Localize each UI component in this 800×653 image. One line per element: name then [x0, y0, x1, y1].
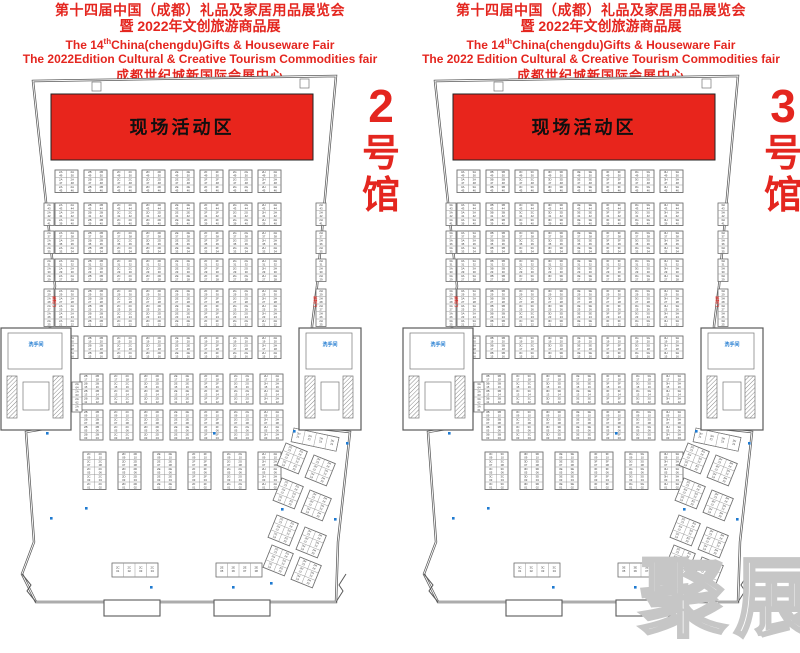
- stairs-icon: [305, 376, 315, 418]
- booth-strip: 2C012C022C032C04: [112, 563, 158, 577]
- booth-cell-label: 3E09: [576, 410, 580, 417]
- booth-block: 2A312A322A292A302A272A28: [55, 259, 78, 282]
- booth-cell-label: 3E03: [576, 433, 580, 440]
- entrance-porch: [104, 600, 160, 616]
- booth-block: 3E293E303E273E283E253E263E233E243E213E22: [573, 289, 596, 327]
- booth-cell-label: 2E11: [174, 397, 178, 404]
- booth-block: 2C372C382C352C362C332C34: [113, 231, 136, 254]
- booth-cell-label: 3H45: [664, 185, 668, 192]
- booth-cell-label: 3A29: [449, 289, 453, 296]
- activity-area-banner: 现场活动区: [51, 94, 313, 160]
- booth-cell-label: 2E24: [187, 312, 191, 319]
- booth-cell-label: 2E23: [175, 312, 179, 319]
- booth-block: 3G293G303G273G283G253G263G233G243G213G22: [631, 289, 654, 327]
- booth-cell-label: 3C06: [500, 467, 504, 474]
- booth-cell-label: 2G24: [244, 312, 248, 319]
- booth-cell-label: 3B21: [490, 319, 494, 326]
- booth-cell-label: 2E15: [174, 382, 178, 389]
- booth-block: 2D432D442D412D422D392D40: [142, 203, 165, 226]
- booth-cell-label: 3H05: [666, 425, 670, 432]
- booth-cell-label: 2D04: [133, 475, 137, 482]
- booth-cell-label: 2E07: [243, 566, 247, 573]
- booth-cell-label: 2H17: [264, 374, 268, 381]
- booth-cell-label: 3G10: [647, 410, 651, 417]
- booth-cell-label: 2H50: [273, 170, 277, 177]
- booth-cell-label: 2E46: [187, 185, 191, 192]
- booth-cell-label: 2G28: [244, 274, 248, 281]
- booth-cell-label: 3E38: [589, 231, 593, 238]
- booth-cell-label: 2D27: [146, 297, 150, 304]
- booth-cell-label: 2C43: [117, 203, 121, 210]
- booth-cell-label: 2F09: [192, 452, 196, 459]
- booth-cell-label: 3D06: [535, 467, 539, 474]
- booth-cell-label: 2C08: [125, 418, 129, 425]
- booth-cell-label: 3H18: [677, 374, 681, 381]
- booth-cell-label: 2A31: [47, 259, 51, 266]
- booth-cell-label: 3C10: [500, 452, 504, 459]
- booth-cell-label: 3G24: [646, 312, 650, 319]
- booth-cell-label: 2E19: [175, 336, 179, 343]
- booth-cell-label: 2D12: [155, 397, 159, 404]
- booth-cell-label: 2E16: [187, 351, 191, 358]
- booth-cell-label: 3E29: [577, 267, 581, 274]
- booth-cell-label: 3E05: [559, 467, 563, 474]
- booth-cell-label: 3C17: [519, 344, 523, 351]
- stairs-icon: [53, 376, 63, 418]
- booth-cell-label: 3C21: [519, 319, 523, 326]
- booth-cell-label: 2D49: [146, 170, 150, 177]
- booth-cell-label: 3D33: [548, 246, 552, 253]
- booth-cell-label: 2H18: [275, 374, 279, 381]
- booth-cell-label: 3C46: [530, 185, 534, 192]
- booth-cell-label: 3B39: [490, 218, 494, 225]
- booth-cell-label: 2D47: [146, 178, 150, 185]
- booth-cell-label: 3E11: [576, 397, 580, 404]
- booth-cell-label: 2A37: [59, 231, 63, 238]
- booth-cell-label: 3H40: [675, 218, 679, 225]
- booth-cell-label: 3B32: [502, 259, 506, 266]
- booth-block: 3B193B203B173B183B153B16: [486, 336, 509, 359]
- booth-cell-label: 2G02: [238, 482, 242, 489]
- booth-cell-label: 2A21: [59, 319, 63, 326]
- booth-cell-label: 2A46: [71, 185, 75, 192]
- booth-cell-label: 2E39: [175, 218, 179, 225]
- booth-cell-label: 3E01: [559, 482, 563, 489]
- booth-cell-label: 2B28: [100, 274, 104, 281]
- booth-block: 3C373C383C353C363C333C34: [515, 231, 538, 254]
- booth-cell-label: 3B34: [502, 246, 506, 253]
- booth-cell-label: 2F12: [216, 397, 220, 404]
- booth-cell-label: 2F05: [204, 425, 208, 432]
- booth-block: 2F292F302F272F282F252F262F232F242F212F22: [200, 289, 223, 327]
- booth-cell-label: 2E29: [175, 289, 179, 296]
- booth-cell-label: 3C07: [516, 418, 520, 425]
- booth-cell-label: 2D40: [157, 218, 161, 225]
- booth-cell-label: 3F35: [606, 239, 610, 246]
- booth-cell-label: 2F39: [204, 218, 208, 225]
- booth-cell-label: 3A40: [473, 218, 477, 225]
- booth-cell-label: 2D05: [144, 425, 148, 432]
- booth-cell-label: 3B22: [502, 319, 506, 326]
- booth-cell-label: 2C15: [117, 351, 121, 358]
- booth-block: 2C192C202C172C182C152C16: [113, 336, 136, 359]
- booth-cell-label: 3C27: [519, 297, 523, 304]
- booth-cell-label: 2C07: [87, 460, 91, 467]
- booth-block: 3A373A383A353A363A333A34: [457, 231, 480, 254]
- booth-cell-label: 2D38: [157, 231, 161, 238]
- booth-cell-label: 3H42: [675, 211, 679, 218]
- booth-cell-label: 3C05: [516, 425, 520, 432]
- booth-cell-label: 3H16: [675, 351, 679, 358]
- booth-cell-label: 3E17: [577, 344, 581, 351]
- booth-cell-label: 3F20: [618, 336, 622, 343]
- fair-subtitle-en: The 2022Edition Cultural & Creative Tour…: [0, 53, 400, 66]
- booth-cell-label: 3A46: [473, 185, 477, 192]
- booth-cell-label: 2A30: [71, 267, 75, 274]
- booth-cell-label: 2G20: [244, 336, 248, 343]
- booth-cell-label: 3E26: [589, 304, 593, 311]
- booth-cell-label: 2E15: [175, 351, 179, 358]
- booth-cell-label: 3G05: [636, 425, 640, 432]
- booth-cell-label: 3H06: [675, 467, 679, 474]
- booth-block: 3D493D503D473D483D453D46: [544, 170, 567, 193]
- booth-block: 2H192H202H172H182H152H16: [258, 336, 281, 359]
- booth-cell-label: 2E07: [174, 418, 178, 425]
- booth-cell-label: 3B16: [502, 351, 506, 358]
- booth-strip: 2H292H282H272H262H25: [316, 289, 326, 327]
- pillar-dot: [85, 507, 88, 510]
- booth-cell-label: 3G28: [646, 297, 650, 304]
- booth-cell-label: 2C19: [117, 336, 121, 343]
- booth-cell-label: 3C36: [530, 239, 534, 246]
- booth-cell-label: 3C18: [527, 374, 531, 381]
- booth-cell-label: 3F10: [606, 452, 610, 459]
- booth-cell-label: 3B38: [502, 231, 506, 238]
- booth-cell-label: 3D15: [548, 351, 552, 358]
- booth-cell-label: 3B48: [502, 178, 506, 185]
- booth-cell-label: 2F43: [204, 203, 208, 210]
- booth-cell-label: 2H30: [273, 289, 277, 296]
- booth-cell-label: 2F17: [204, 344, 208, 351]
- ordinal-superscript: th: [104, 37, 112, 46]
- pillar-dot: [748, 442, 751, 445]
- booth-cell-label: 2A42: [71, 211, 75, 218]
- booth-cell-label: 3F05: [606, 425, 610, 432]
- booth-cell-label: 3A43: [461, 203, 465, 210]
- booth-cell-label: 2C31: [117, 259, 121, 266]
- booth-cell-label: 2H10: [273, 452, 277, 459]
- booth-cell-label: 3B18: [498, 374, 502, 381]
- booth-cell-label: 2G32: [244, 259, 248, 266]
- booth-cell-label: 2D29: [146, 289, 150, 296]
- booth-cell-label: 2E37: [175, 231, 179, 238]
- booth-cell-label: 2E03: [157, 475, 161, 482]
- booth-cell-label: 3F06: [606, 467, 610, 474]
- booth-cell-label: 2B16: [100, 351, 104, 358]
- activity-area-label: 现场活动区: [532, 117, 637, 138]
- pillar-dot: [334, 518, 337, 521]
- booth-cell-label: 2E06: [232, 566, 236, 573]
- booth-cell-label: 3E09: [559, 452, 563, 459]
- booth-cell-label: 2B08: [96, 418, 100, 425]
- booth-cell-label: 3B28: [502, 297, 506, 304]
- booth-cell-label: 3B17: [490, 344, 494, 351]
- booth-cell-label: 2B29: [88, 267, 92, 274]
- fair-subtitle-cn: 暨 2022年文创旅游商品展: [0, 19, 400, 34]
- booth-cell-label: 3D30: [559, 267, 563, 274]
- booth-cell-label: 2D17: [146, 344, 150, 351]
- booth-cell-label: 2D09: [144, 410, 148, 417]
- booth-cell-label: 3H35: [664, 239, 668, 246]
- booth-cell-label: 2A64: [75, 382, 79, 389]
- booth-cell-label: 3F28: [618, 297, 622, 304]
- booth-cell-label: 2F09: [204, 410, 208, 417]
- booth-cell-label: 3A26: [473, 304, 477, 311]
- booth-cell-label: 2C16: [128, 351, 132, 358]
- booth-cell-label: 2C33: [117, 246, 121, 253]
- booth-cell-label: 3H08: [675, 460, 679, 467]
- booth-cell-label: 2A40: [71, 218, 75, 225]
- booth-cell-label: 2B32: [100, 259, 104, 266]
- booth-block: 2C312C322C292C302C272C28: [113, 259, 136, 282]
- booth-cell-label: 3H29: [721, 274, 725, 281]
- booth-block: 3G493G503G473G483G453G46: [631, 170, 654, 193]
- booth-cell-label: 2D08: [155, 418, 159, 425]
- booth-cell-label: 3H35: [721, 246, 725, 253]
- booth-cell-label: 3B12: [498, 397, 502, 404]
- booth-block: 3D433D443D413D423D393D40: [544, 203, 567, 226]
- booth-cell-label: 2H22: [273, 319, 277, 326]
- booth-block: 2B092B102B072B082B052B062B032B04: [80, 410, 103, 440]
- booth-cell-label: 3D02: [535, 482, 539, 489]
- booth-cell-label: 2H18: [273, 344, 277, 351]
- booth-cell-label: 2C10: [125, 410, 129, 417]
- booth-cell-label: 2F03: [192, 475, 196, 482]
- booth-cell-label: 2H12: [275, 397, 279, 404]
- booth-cell-label: 2C14: [125, 389, 129, 396]
- booth-cell-label: 3H23: [664, 312, 668, 319]
- booth-cell-label: 3A28: [449, 297, 453, 304]
- booth-cell-label: 2B07: [84, 418, 88, 425]
- booth-block: 2H312H322H292H302H272H28: [258, 259, 281, 282]
- booth-cell-label: 2H09: [264, 410, 268, 417]
- booth-cell-label: 2E45: [175, 185, 179, 192]
- booth-cell-label: 2E08: [186, 418, 190, 425]
- booth-cell-label: 3G23: [635, 312, 639, 319]
- booth-cell-label: 2H46: [273, 185, 277, 192]
- booth-cell-label: 2G06: [238, 467, 242, 474]
- booth-cell-label: 2B10: [96, 410, 100, 417]
- booth-cell-label: 2C04: [150, 566, 154, 573]
- booth-cell-label: 2E31: [175, 259, 179, 266]
- booth-cell-label: 2E05: [174, 425, 178, 432]
- booth-cell-label: 3G02: [640, 482, 644, 489]
- fair-title-cn: 第十四届中国（成都）礼品及家居用品展览会: [0, 3, 400, 18]
- booth-cell-label: 3F15: [606, 382, 610, 389]
- booth-cell-label: 2H40: [273, 218, 277, 225]
- booth-cell-label: 2A47: [59, 178, 63, 185]
- booth-cell-label: 3G14: [647, 389, 651, 396]
- booth-cell-label: 2F50: [216, 170, 220, 177]
- booth-cell-label: 3C35: [519, 239, 523, 246]
- booth-cell-label: 2B17: [88, 344, 92, 351]
- booth-cell-label: 2H26: [273, 304, 277, 311]
- booth-cell-label: 3B16: [498, 382, 502, 389]
- booth-cell-label: 3B15: [486, 382, 490, 389]
- booth-block: 3G173G183G153G163G133G143G113G12: [632, 374, 655, 404]
- booth-cell-label: 2G50: [244, 170, 248, 177]
- booth-cell-label: 3F08: [618, 418, 622, 425]
- activity-area-label: 现场活动区: [130, 117, 235, 138]
- booth-cell-label: 3F24: [618, 312, 622, 319]
- booth-cell-label: 2A35: [59, 239, 63, 246]
- booth-cell-label: 2B18: [96, 374, 100, 381]
- booth-strip: 3H313H303H29: [718, 259, 728, 282]
- booth-cell-label: 3E04: [588, 433, 592, 440]
- booth-block: 3B493B503B473B483B453B46: [486, 170, 509, 193]
- pillar-dot: [213, 432, 216, 435]
- pillar-dot: [452, 517, 455, 520]
- booth-cell-label: 2F35: [204, 239, 208, 246]
- booth-cell-label: 3H42: [721, 211, 725, 218]
- booth-cell-label: 3C23: [519, 312, 523, 319]
- booth-cell-label: 3A25: [449, 319, 453, 326]
- booth-cell-label: 2D05: [122, 467, 126, 474]
- booth-cell-label: 3E33: [577, 246, 581, 253]
- booth-strip: 3A293A283A273A263A25: [446, 289, 456, 327]
- booth-block: 3C493C503C473C483C453C46: [515, 170, 538, 193]
- booth-block: 3E313E323E293E303E273E28: [573, 259, 596, 282]
- booth-strip: 2A312A302A29: [44, 259, 54, 282]
- booth-cell-label: 2B47: [88, 178, 92, 185]
- booth-cell-label: 2D10: [155, 410, 159, 417]
- booth-cell-label: 3G20: [646, 336, 650, 343]
- booth-cell-label: 2A61: [75, 405, 79, 412]
- booth-cell-label: 3D48: [559, 178, 563, 185]
- booth-cell-label: 2D28: [157, 297, 161, 304]
- booth-cell-label: 2C27: [117, 297, 121, 304]
- booth-cell-label: 2B17: [84, 374, 88, 381]
- booth-cell-label: 3G19: [635, 336, 639, 343]
- booth-cell-label: 2C29: [117, 267, 121, 274]
- booth-cell-label: 3B19: [490, 336, 494, 343]
- booth-block: 2E492E502E472E482E452E46: [171, 170, 194, 193]
- entrance-porch: [506, 600, 562, 616]
- booth-cell-label: 2D18: [155, 374, 159, 381]
- booth-cell-label: 3H27: [721, 304, 725, 311]
- booth-cell-label: 2E40: [187, 218, 191, 225]
- booth-cell-label: 2B06: [96, 425, 100, 432]
- hall-number-char: 3: [770, 80, 796, 132]
- booth-cell-label: 3F14: [618, 389, 622, 396]
- booth-cell-label: 2C02: [98, 482, 102, 489]
- booth-cell-label: 3G26: [646, 304, 650, 311]
- booth-cell-label: 3H47: [664, 178, 668, 185]
- booth-strip: 2A292A282A272A262A25: [44, 289, 54, 327]
- booth-cell-label: 3F07: [594, 460, 598, 467]
- booth-block: 3E493E503E473E483E453E46: [573, 170, 596, 193]
- hall-3-number-label: 3号馆: [764, 80, 800, 217]
- booth-cell-label: 2G28: [244, 297, 248, 304]
- booth-cell-label: 3A42: [449, 211, 453, 218]
- fair-title-en-part: The 14: [467, 38, 505, 52]
- booth-cell-label: 2F11: [204, 397, 208, 404]
- booth-block: 3E373E383E353E363E333E34: [573, 231, 596, 254]
- booth-cell-label: 2G01: [227, 482, 231, 489]
- booth-cell-label: 2F34: [216, 246, 220, 253]
- booth-cell-label: 3E37: [577, 231, 581, 238]
- booth-strip: 3A313A303A29: [446, 259, 456, 282]
- booth-cell-label: 2F47: [204, 178, 208, 185]
- booth-cell-label: 3D28: [559, 297, 563, 304]
- booth-cell-label: 2D20: [157, 336, 161, 343]
- booth-block: 2D492D502D472D482D452D46: [142, 170, 165, 193]
- booth-cell-label: 2F38: [216, 231, 220, 238]
- booth-cell-label: 2H31: [319, 259, 323, 266]
- booth-cell-label: 3G33: [635, 246, 639, 253]
- booth-cell-label: 3F17: [606, 374, 610, 381]
- booth-cell-label: 3C09: [516, 410, 520, 417]
- booth-cell-label: 3G39: [635, 218, 639, 225]
- booth-cell-label: 2D15: [144, 382, 148, 389]
- booth-cell-label: 3E32: [589, 259, 593, 266]
- booth-cell-label: 2D01: [122, 482, 126, 489]
- booth-cell-label: 3E42: [589, 211, 593, 218]
- booth-cell-label: 3H36: [675, 239, 679, 246]
- booth-cell-label: 3D27: [548, 274, 552, 281]
- stair-restroom-structure: 洗手间: [299, 328, 361, 430]
- booth-cell-label: 3G31: [635, 259, 639, 266]
- booth-cell-label: 2G44: [244, 203, 248, 210]
- booth-cell-label: 3F25: [606, 304, 610, 311]
- booth-cell-label: 2A42: [47, 211, 51, 218]
- booth-cell-label: 2D15: [146, 351, 150, 358]
- booth-cell-label: 2F10: [204, 452, 208, 459]
- booth-cell-label: 2G03: [234, 433, 238, 440]
- booth-cell-label: 2G08: [245, 418, 249, 425]
- booth-cell-label: 2F26: [216, 304, 220, 311]
- booth-cell-label: 2C29: [117, 289, 121, 296]
- booth-cell-label: 3B25: [490, 304, 494, 311]
- pillar-dot: [695, 430, 698, 433]
- booth-cell-label: 2E33: [175, 246, 179, 253]
- booth-cell-label: 2E41: [175, 211, 179, 218]
- booth-cell-label: 2E06: [169, 467, 173, 474]
- booth-cell-label: 2H36: [273, 239, 277, 246]
- booth-cell-label: 3F29: [606, 289, 610, 296]
- booth-block: 3D373D383D353D363D333D34: [544, 231, 567, 254]
- booth-cell-label: 2D07: [144, 418, 148, 425]
- fair-title-en: The 14thChina(chengdu)Gifts & Houseware …: [402, 38, 800, 52]
- booth-cell-label: 2H29: [262, 267, 266, 274]
- booth-cell-label: 3D46: [559, 185, 563, 192]
- booth-cell-label: 3F36: [618, 239, 622, 246]
- booth-cell-label: 2F17: [204, 374, 208, 381]
- booth-cell-label: 2B05: [84, 425, 88, 432]
- booth-cell-label: 2G07: [234, 418, 238, 425]
- booth-cell-label: 3G36: [646, 239, 650, 246]
- booth-cell-label: 3G08: [640, 460, 644, 467]
- booth-cell-label: 3C45: [519, 185, 523, 192]
- booth-cell-label: 2H05: [264, 425, 268, 432]
- booth-block: 2H292H302H272H282H252H262H232H242H212H22: [258, 289, 281, 327]
- booth-cell-label: 2H41: [319, 218, 323, 225]
- booth-cell-label: 2H47: [262, 178, 266, 185]
- booth-block: 2G372G382G352G362G332G34: [229, 231, 252, 254]
- booth-cell-label: 2H13: [264, 389, 268, 396]
- hall-3-header: 第十四届中国（成都）礼品及家居用品展览会 暨 2022年文创旅游商品展 The …: [402, 3, 800, 83]
- booth-cell-label: 3G13: [636, 389, 640, 396]
